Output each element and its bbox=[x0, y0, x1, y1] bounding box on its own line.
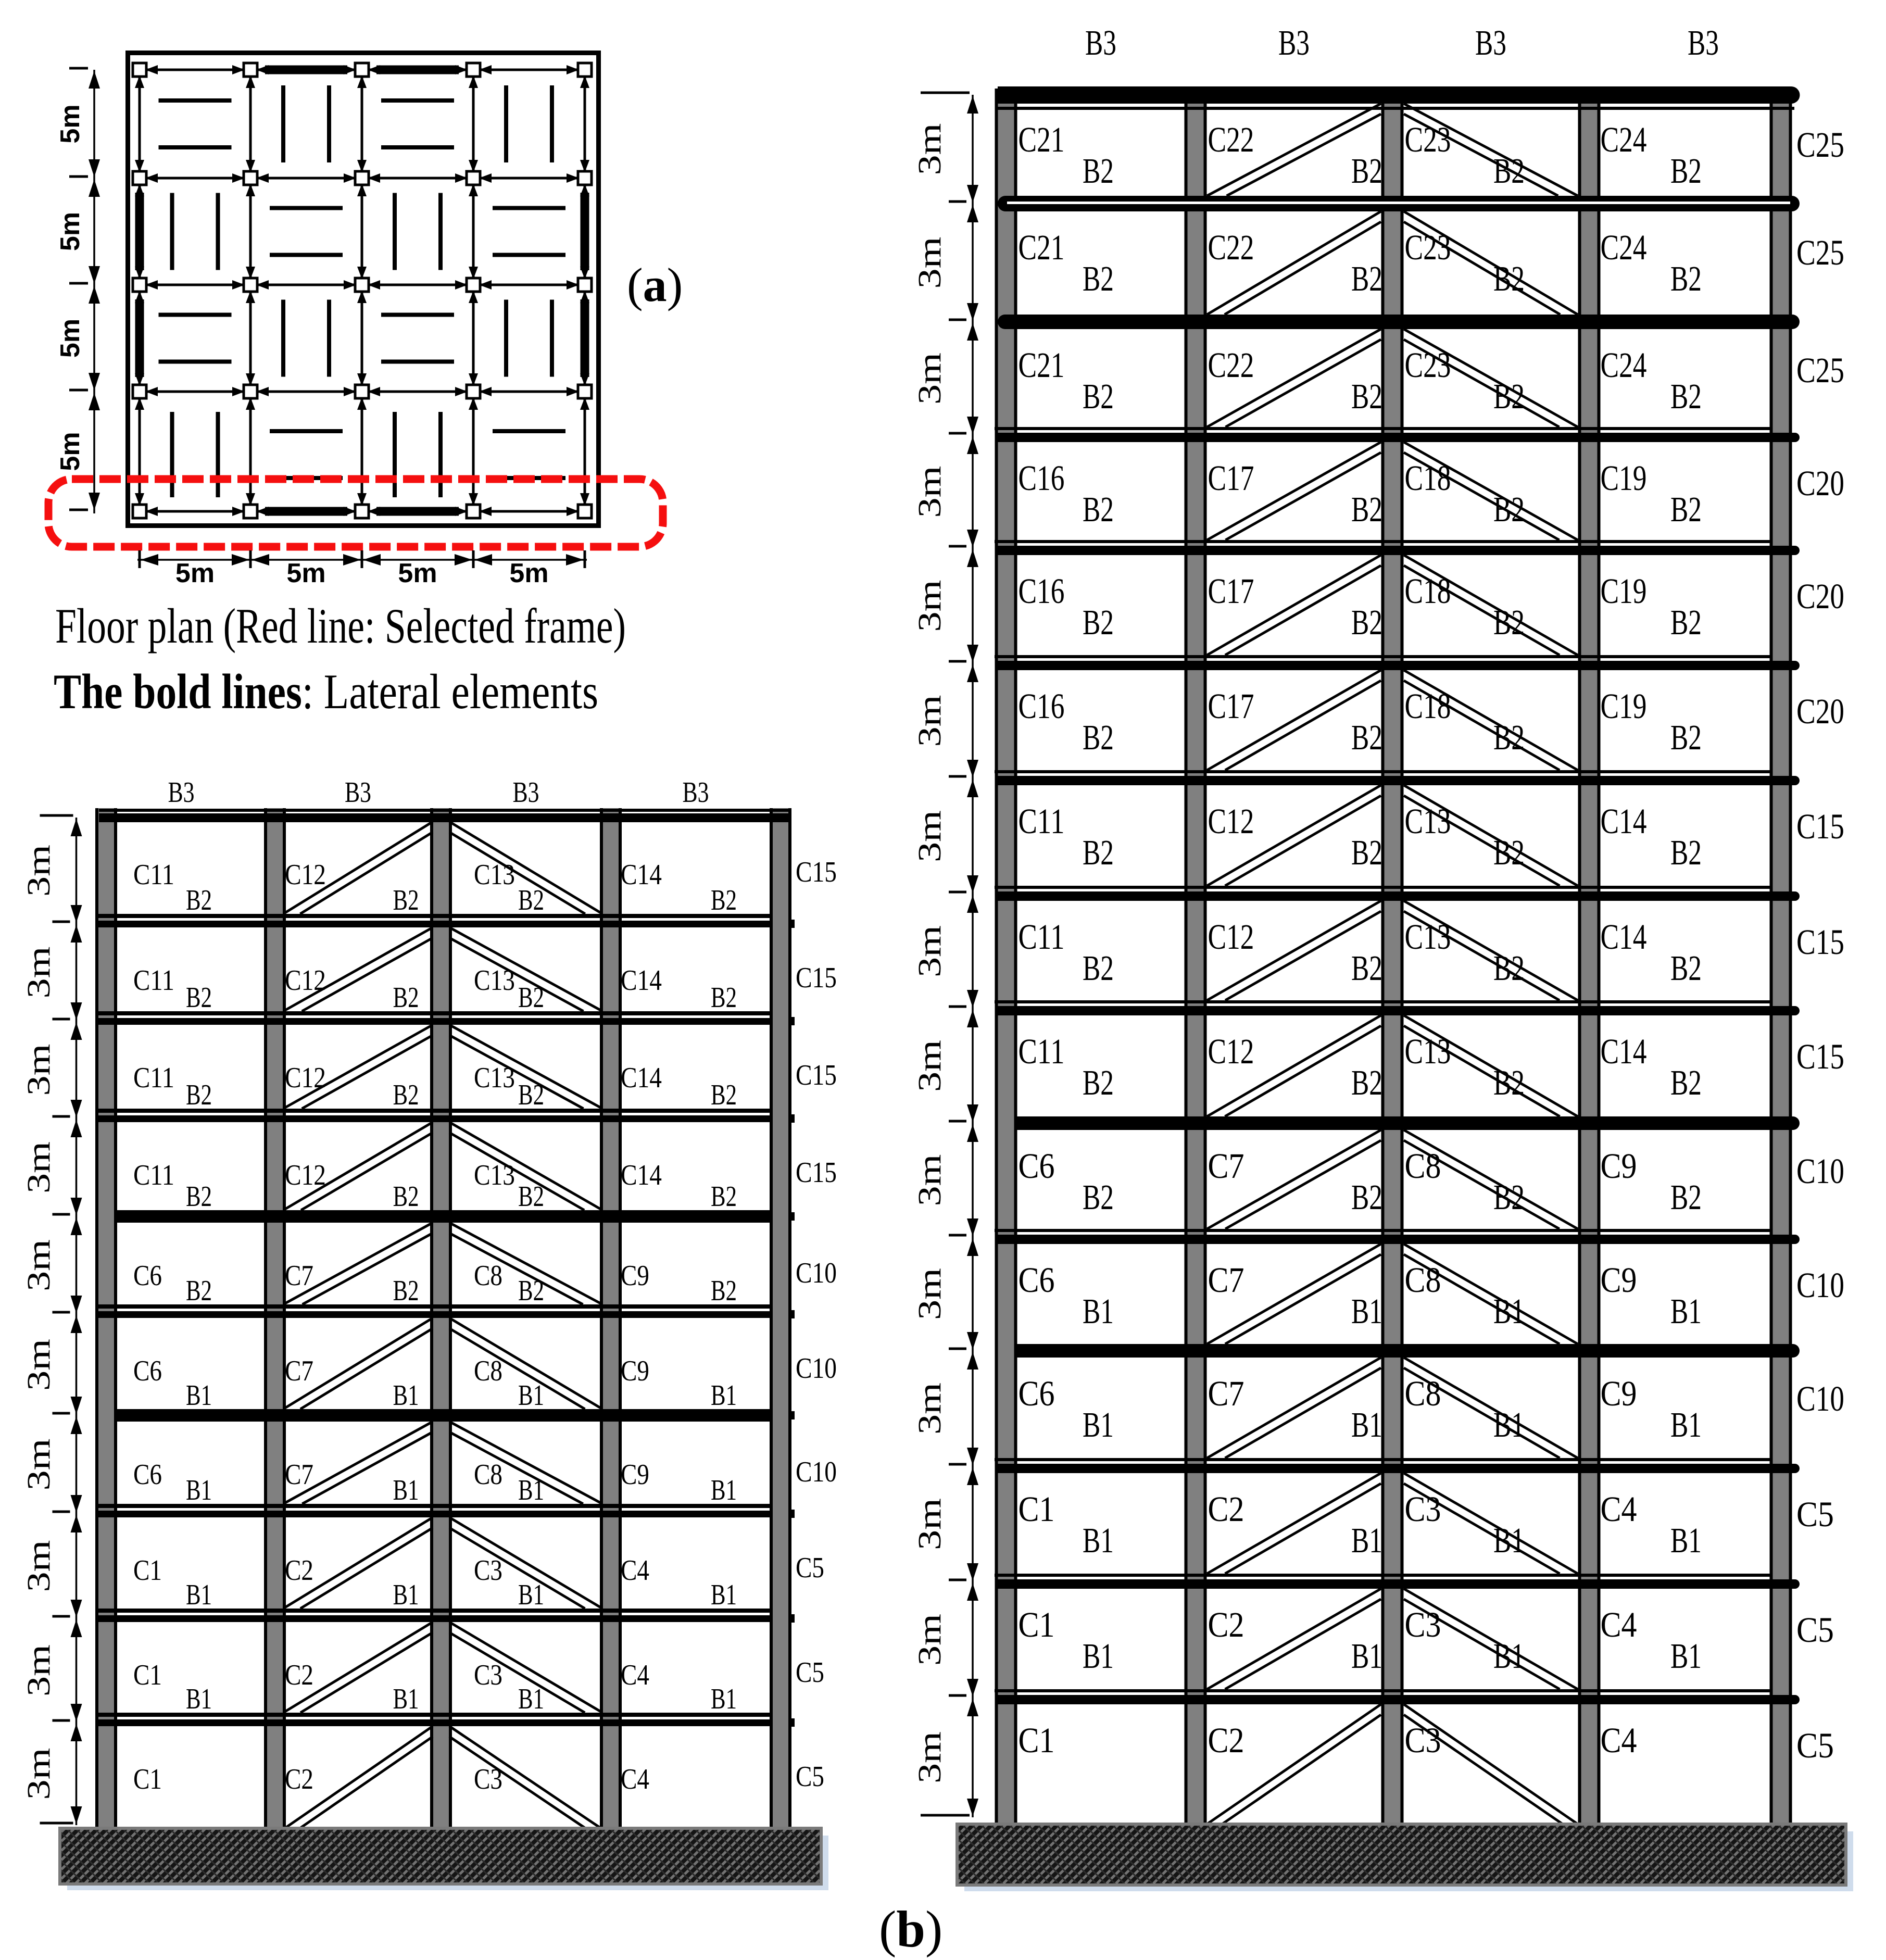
svg-text:C9: C9 bbox=[1601, 1374, 1637, 1413]
svg-text:B2: B2 bbox=[1351, 259, 1382, 298]
svg-text:B2: B2 bbox=[518, 884, 544, 916]
svg-text:B1: B1 bbox=[393, 1579, 419, 1611]
svg-text:B1: B1 bbox=[518, 1379, 544, 1412]
svg-text:B1: B1 bbox=[711, 1474, 737, 1506]
svg-text:C14: C14 bbox=[1601, 1032, 1647, 1071]
svg-text:C16: C16 bbox=[1019, 458, 1065, 498]
svg-text:(b): (b) bbox=[879, 1900, 942, 1958]
svg-text:B2: B2 bbox=[1670, 833, 1702, 872]
svg-text:B1: B1 bbox=[711, 1579, 737, 1611]
svg-text:B2: B2 bbox=[1351, 948, 1382, 988]
svg-text:B2: B2 bbox=[1083, 833, 1114, 872]
svg-text:B2: B2 bbox=[1083, 259, 1114, 298]
svg-text:C6: C6 bbox=[133, 1459, 162, 1491]
svg-text:B2: B2 bbox=[186, 1079, 212, 1111]
svg-text:B2: B2 bbox=[1670, 948, 1702, 988]
svg-text:C4: C4 bbox=[621, 1659, 649, 1691]
svg-text:C1: C1 bbox=[133, 1763, 162, 1795]
svg-text:C15: C15 bbox=[1796, 922, 1844, 962]
svg-text:5m: 5m bbox=[55, 212, 85, 251]
svg-text:5m: 5m bbox=[55, 104, 85, 143]
svg-text:B1: B1 bbox=[1670, 1636, 1702, 1676]
svg-text:B2: B2 bbox=[1493, 1177, 1525, 1217]
svg-text:C12: C12 bbox=[285, 859, 326, 891]
svg-text:B1: B1 bbox=[1083, 1405, 1114, 1444]
svg-text:C13: C13 bbox=[1405, 917, 1451, 957]
svg-text:B1: B1 bbox=[186, 1474, 212, 1506]
svg-text:C25: C25 bbox=[1796, 125, 1844, 165]
svg-text:B2: B2 bbox=[1670, 489, 1702, 529]
svg-text:C10: C10 bbox=[1796, 1379, 1844, 1418]
svg-text:C9: C9 bbox=[1601, 1260, 1637, 1300]
svg-text:B1: B1 bbox=[393, 1683, 419, 1715]
svg-text:C4: C4 bbox=[621, 1554, 649, 1587]
svg-text:C8: C8 bbox=[474, 1459, 502, 1491]
svg-text:C12: C12 bbox=[285, 964, 326, 997]
svg-text:(a): (a) bbox=[627, 258, 683, 311]
svg-text:3m: 3m bbox=[912, 1731, 948, 1783]
svg-text:C15: C15 bbox=[796, 856, 837, 888]
svg-text:B2: B2 bbox=[1493, 948, 1525, 988]
svg-text:C14: C14 bbox=[621, 1159, 662, 1191]
svg-text:B2: B2 bbox=[1351, 151, 1382, 191]
svg-text:B2: B2 bbox=[518, 1180, 544, 1213]
svg-text:C9: C9 bbox=[1601, 1146, 1637, 1186]
svg-text:C6: C6 bbox=[1019, 1374, 1055, 1413]
svg-text:3m: 3m bbox=[912, 1268, 948, 1320]
svg-text:C2: C2 bbox=[1208, 1489, 1244, 1529]
svg-text:5m: 5m bbox=[286, 558, 325, 588]
svg-text:B1: B1 bbox=[393, 1474, 419, 1506]
svg-text:B2: B2 bbox=[1493, 151, 1525, 191]
svg-text:3m: 3m bbox=[21, 947, 57, 999]
svg-text:B2: B2 bbox=[1351, 602, 1382, 642]
svg-text:C22: C22 bbox=[1208, 228, 1254, 267]
svg-text:C1: C1 bbox=[1019, 1489, 1055, 1529]
svg-text:The bold lines: Lateral elemen: The bold lines: Lateral elements bbox=[54, 664, 598, 719]
svg-text:C3: C3 bbox=[1405, 1605, 1441, 1644]
svg-text:C20: C20 bbox=[1796, 692, 1844, 731]
svg-text:B2: B2 bbox=[1351, 1177, 1382, 1217]
svg-text:C18: C18 bbox=[1405, 458, 1451, 498]
svg-text:C2: C2 bbox=[285, 1659, 313, 1691]
svg-text:B1: B1 bbox=[1351, 1636, 1382, 1676]
svg-text:C12: C12 bbox=[285, 1062, 326, 1094]
svg-text:3m: 3m bbox=[912, 1383, 948, 1435]
svg-text:B2: B2 bbox=[1083, 1177, 1114, 1217]
svg-text:B1: B1 bbox=[1083, 1291, 1114, 1331]
svg-text:B2: B2 bbox=[1083, 151, 1114, 191]
svg-text:C8: C8 bbox=[1405, 1146, 1441, 1186]
svg-text:C14: C14 bbox=[621, 1062, 662, 1094]
svg-text:B3: B3 bbox=[1085, 23, 1116, 62]
svg-text:B2: B2 bbox=[186, 982, 212, 1014]
svg-text:B3: B3 bbox=[683, 776, 709, 809]
svg-text:C2: C2 bbox=[1208, 1605, 1244, 1644]
svg-text:C9: C9 bbox=[621, 1355, 649, 1387]
svg-text:C5: C5 bbox=[796, 1552, 824, 1584]
svg-text:C25: C25 bbox=[1796, 350, 1844, 390]
svg-text:3m: 3m bbox=[912, 810, 948, 862]
svg-text:C20: C20 bbox=[1796, 576, 1844, 616]
svg-text:C13: C13 bbox=[474, 1062, 515, 1094]
svg-text:C19: C19 bbox=[1601, 686, 1647, 726]
svg-text:C22: C22 bbox=[1208, 120, 1254, 159]
svg-text:C14: C14 bbox=[1601, 917, 1647, 957]
svg-text:C15: C15 bbox=[796, 1157, 837, 1189]
svg-text:C13: C13 bbox=[474, 859, 515, 891]
svg-text:C10: C10 bbox=[1796, 1265, 1844, 1305]
svg-text:3m: 3m bbox=[21, 1439, 57, 1491]
svg-text:C24: C24 bbox=[1601, 120, 1647, 159]
svg-text:C8: C8 bbox=[474, 1260, 502, 1292]
svg-text:B2: B2 bbox=[1351, 718, 1382, 757]
svg-text:3m: 3m bbox=[21, 1044, 57, 1096]
svg-text:B1: B1 bbox=[1493, 1291, 1525, 1331]
svg-text:C8: C8 bbox=[1405, 1260, 1441, 1300]
svg-text:B3: B3 bbox=[1688, 23, 1719, 62]
svg-text:C10: C10 bbox=[796, 1456, 837, 1488]
svg-text:B1: B1 bbox=[1351, 1405, 1382, 1444]
svg-text:5m: 5m bbox=[398, 558, 437, 588]
svg-text:C4: C4 bbox=[1601, 1605, 1637, 1644]
svg-text:C9: C9 bbox=[621, 1260, 649, 1292]
svg-text:B1: B1 bbox=[518, 1683, 544, 1715]
svg-text:B1: B1 bbox=[1670, 1291, 1702, 1331]
svg-text:C7: C7 bbox=[1208, 1146, 1244, 1186]
svg-text:C15: C15 bbox=[1796, 1037, 1844, 1076]
svg-text:C1: C1 bbox=[1019, 1720, 1055, 1760]
svg-text:C12: C12 bbox=[1208, 917, 1254, 957]
svg-text:3m: 3m bbox=[912, 466, 948, 518]
svg-text:B3: B3 bbox=[1475, 23, 1506, 62]
svg-text:3m: 3m bbox=[912, 695, 948, 747]
svg-text:C4: C4 bbox=[1601, 1720, 1637, 1760]
svg-text:C22: C22 bbox=[1208, 345, 1254, 385]
svg-text:C8: C8 bbox=[1405, 1374, 1441, 1413]
svg-text:Floor plan (Red line: Selected: Floor plan (Red line: Selected frame) bbox=[55, 598, 626, 654]
svg-text:3m: 3m bbox=[912, 925, 948, 977]
svg-text:C7: C7 bbox=[1208, 1260, 1244, 1300]
svg-text:C15: C15 bbox=[796, 1059, 837, 1091]
svg-text:B2: B2 bbox=[1493, 1063, 1525, 1102]
svg-text:3m: 3m bbox=[21, 845, 57, 897]
svg-text:B2: B2 bbox=[1670, 602, 1702, 642]
svg-text:C19: C19 bbox=[1601, 458, 1647, 498]
svg-text:B2: B2 bbox=[1083, 948, 1114, 988]
svg-text:B2: B2 bbox=[1493, 259, 1525, 298]
svg-text:B2: B2 bbox=[1670, 1063, 1702, 1102]
svg-text:B2: B2 bbox=[1493, 489, 1525, 529]
svg-text:B2: B2 bbox=[1351, 833, 1382, 872]
svg-text:C19: C19 bbox=[1601, 571, 1647, 611]
svg-text:C24: C24 bbox=[1601, 345, 1647, 385]
svg-text:B2: B2 bbox=[1493, 602, 1525, 642]
svg-text:C1: C1 bbox=[1019, 1605, 1055, 1644]
svg-text:B1: B1 bbox=[1083, 1636, 1114, 1676]
svg-text:C4: C4 bbox=[1601, 1489, 1637, 1529]
svg-text:C25: C25 bbox=[1796, 233, 1844, 272]
svg-text:3m: 3m bbox=[912, 123, 948, 175]
svg-text:3m: 3m bbox=[912, 1498, 948, 1550]
svg-text:B3: B3 bbox=[345, 776, 371, 809]
svg-text:3m: 3m bbox=[912, 237, 948, 289]
svg-text:C5: C5 bbox=[1796, 1494, 1834, 1534]
svg-text:C12: C12 bbox=[1208, 1032, 1254, 1071]
svg-text:C3: C3 bbox=[474, 1763, 502, 1795]
svg-text:C3: C3 bbox=[474, 1554, 502, 1587]
svg-text:C23: C23 bbox=[1405, 120, 1451, 159]
svg-text:B3: B3 bbox=[1278, 23, 1310, 62]
svg-text:C1: C1 bbox=[133, 1659, 162, 1691]
svg-text:B2: B2 bbox=[1351, 489, 1382, 529]
svg-text:B2: B2 bbox=[1083, 602, 1114, 642]
svg-text:C7: C7 bbox=[285, 1355, 313, 1387]
svg-text:C14: C14 bbox=[621, 859, 662, 891]
svg-text:5m: 5m bbox=[509, 558, 548, 588]
svg-text:C18: C18 bbox=[1405, 571, 1451, 611]
svg-text:B1: B1 bbox=[518, 1474, 544, 1506]
svg-text:B2: B2 bbox=[186, 1180, 212, 1213]
svg-text:B1: B1 bbox=[711, 1379, 737, 1412]
svg-text:C6: C6 bbox=[133, 1260, 162, 1292]
svg-text:B1: B1 bbox=[393, 1379, 419, 1412]
svg-text:C21: C21 bbox=[1019, 120, 1065, 159]
svg-text:C8: C8 bbox=[474, 1355, 502, 1387]
svg-text:B2: B2 bbox=[1083, 489, 1114, 529]
svg-text:C14: C14 bbox=[1601, 801, 1647, 841]
svg-text:B2: B2 bbox=[1670, 151, 1702, 191]
svg-text:C21: C21 bbox=[1019, 228, 1065, 267]
svg-text:C4: C4 bbox=[621, 1763, 649, 1795]
svg-text:B1: B1 bbox=[1493, 1636, 1525, 1676]
svg-text:C5: C5 bbox=[1796, 1726, 1834, 1765]
svg-text:C2: C2 bbox=[285, 1763, 313, 1795]
svg-text:B2: B2 bbox=[393, 884, 419, 916]
svg-text:C17: C17 bbox=[1208, 458, 1254, 498]
svg-text:C21: C21 bbox=[1019, 345, 1065, 385]
svg-text:C2: C2 bbox=[1208, 1720, 1244, 1760]
svg-text:C11: C11 bbox=[133, 1062, 174, 1094]
svg-text:3m: 3m bbox=[21, 1644, 57, 1697]
svg-text:3m: 3m bbox=[912, 1040, 948, 1092]
svg-text:C18: C18 bbox=[1405, 686, 1451, 726]
svg-text:B2: B2 bbox=[393, 1275, 419, 1307]
svg-text:C2: C2 bbox=[285, 1554, 313, 1587]
svg-text:3m: 3m bbox=[21, 1141, 57, 1193]
svg-text:C24: C24 bbox=[1601, 228, 1647, 267]
svg-text:B2: B2 bbox=[186, 884, 212, 916]
svg-text:3m: 3m bbox=[912, 580, 948, 632]
svg-text:B2: B2 bbox=[393, 1180, 419, 1213]
svg-text:C13: C13 bbox=[474, 1159, 515, 1191]
svg-text:B1: B1 bbox=[711, 1683, 737, 1715]
svg-text:B2: B2 bbox=[1493, 718, 1525, 757]
svg-text:C9: C9 bbox=[621, 1459, 649, 1491]
svg-text:3m: 3m bbox=[21, 1540, 57, 1592]
svg-text:B2: B2 bbox=[1083, 718, 1114, 757]
svg-text:B2: B2 bbox=[1670, 259, 1702, 298]
svg-text:B1: B1 bbox=[1670, 1521, 1702, 1560]
svg-text:C3: C3 bbox=[1405, 1489, 1441, 1529]
svg-text:B2: B2 bbox=[711, 982, 737, 1014]
svg-text:B2: B2 bbox=[518, 1079, 544, 1111]
svg-text:B2: B2 bbox=[1670, 1177, 1702, 1217]
svg-text:C5: C5 bbox=[1796, 1610, 1834, 1650]
svg-text:B1: B1 bbox=[1493, 1405, 1525, 1444]
svg-text:B2: B2 bbox=[1493, 833, 1525, 872]
svg-text:B2: B2 bbox=[711, 1275, 737, 1307]
svg-text:B1: B1 bbox=[1670, 1405, 1702, 1444]
svg-text:C7: C7 bbox=[285, 1459, 313, 1491]
svg-text:C6: C6 bbox=[1019, 1146, 1055, 1186]
svg-text:B1: B1 bbox=[1351, 1291, 1382, 1331]
svg-text:3m: 3m bbox=[912, 1154, 948, 1207]
svg-text:5m: 5m bbox=[55, 432, 85, 471]
svg-text:C14: C14 bbox=[621, 964, 662, 997]
svg-text:5m: 5m bbox=[175, 558, 215, 588]
svg-text:C11: C11 bbox=[133, 1159, 174, 1191]
svg-text:B2: B2 bbox=[518, 982, 544, 1014]
svg-text:C7: C7 bbox=[1208, 1374, 1244, 1413]
svg-text:C11: C11 bbox=[133, 859, 174, 891]
svg-text:C15: C15 bbox=[796, 962, 837, 994]
svg-text:B1: B1 bbox=[1351, 1521, 1382, 1560]
svg-text:C17: C17 bbox=[1208, 571, 1254, 611]
svg-text:3m: 3m bbox=[912, 353, 948, 405]
svg-text:B2: B2 bbox=[711, 1180, 737, 1213]
svg-text:B1: B1 bbox=[1493, 1521, 1525, 1560]
svg-text:C11: C11 bbox=[1019, 1032, 1065, 1071]
svg-text:C16: C16 bbox=[1019, 571, 1065, 611]
svg-text:B2: B2 bbox=[393, 1079, 419, 1111]
svg-text:C10: C10 bbox=[796, 1352, 837, 1385]
svg-text:C12: C12 bbox=[285, 1159, 326, 1191]
svg-text:C15: C15 bbox=[1796, 807, 1844, 846]
svg-text:C10: C10 bbox=[1796, 1151, 1844, 1191]
svg-text:C11: C11 bbox=[1019, 917, 1065, 957]
svg-text:C6: C6 bbox=[1019, 1260, 1055, 1300]
svg-text:C1: C1 bbox=[133, 1554, 162, 1587]
svg-text:C13: C13 bbox=[474, 964, 515, 997]
svg-text:C13: C13 bbox=[1405, 801, 1451, 841]
svg-text:C23: C23 bbox=[1405, 228, 1451, 267]
svg-text:C11: C11 bbox=[1019, 801, 1065, 841]
svg-text:C13: C13 bbox=[1405, 1032, 1451, 1071]
svg-text:C11: C11 bbox=[133, 964, 174, 997]
svg-text:B3: B3 bbox=[513, 776, 539, 809]
svg-text:B1: B1 bbox=[518, 1579, 544, 1611]
svg-text:B2: B2 bbox=[1670, 718, 1702, 757]
svg-text:C7: C7 bbox=[285, 1260, 313, 1292]
svg-text:C16: C16 bbox=[1019, 686, 1065, 726]
svg-text:C20: C20 bbox=[1796, 463, 1844, 503]
svg-text:5m: 5m bbox=[55, 319, 85, 358]
svg-text:C12: C12 bbox=[1208, 801, 1254, 841]
svg-text:B1: B1 bbox=[186, 1683, 212, 1715]
svg-text:B2: B2 bbox=[518, 1275, 544, 1307]
svg-text:C6: C6 bbox=[133, 1355, 162, 1387]
svg-text:C10: C10 bbox=[796, 1257, 837, 1289]
svg-text:B2: B2 bbox=[1670, 376, 1702, 416]
svg-text:B2: B2 bbox=[1083, 1063, 1114, 1102]
svg-text:C3: C3 bbox=[1405, 1720, 1441, 1760]
svg-text:B2: B2 bbox=[1351, 1063, 1382, 1102]
svg-text:B1: B1 bbox=[1083, 1521, 1114, 1560]
svg-text:B1: B1 bbox=[186, 1579, 212, 1611]
svg-text:C5: C5 bbox=[796, 1761, 824, 1793]
svg-text:B2: B2 bbox=[711, 884, 737, 916]
svg-text:3m: 3m bbox=[21, 1339, 57, 1391]
svg-text:B2: B2 bbox=[186, 1275, 212, 1307]
svg-text:C5: C5 bbox=[796, 1656, 824, 1689]
svg-text:3m: 3m bbox=[21, 1748, 57, 1800]
svg-text:B2: B2 bbox=[393, 982, 419, 1014]
svg-text:C17: C17 bbox=[1208, 686, 1254, 726]
svg-text:3m: 3m bbox=[21, 1239, 57, 1291]
svg-text:B2: B2 bbox=[1493, 376, 1525, 416]
svg-text:B2: B2 bbox=[1351, 376, 1382, 416]
svg-text:B3: B3 bbox=[168, 776, 195, 809]
svg-text:B2: B2 bbox=[1083, 376, 1114, 416]
svg-text:B2: B2 bbox=[711, 1079, 737, 1111]
svg-text:3m: 3m bbox=[912, 1614, 948, 1666]
svg-text:B1: B1 bbox=[186, 1379, 212, 1412]
svg-text:C23: C23 bbox=[1405, 345, 1451, 385]
svg-text:C3: C3 bbox=[474, 1659, 502, 1691]
